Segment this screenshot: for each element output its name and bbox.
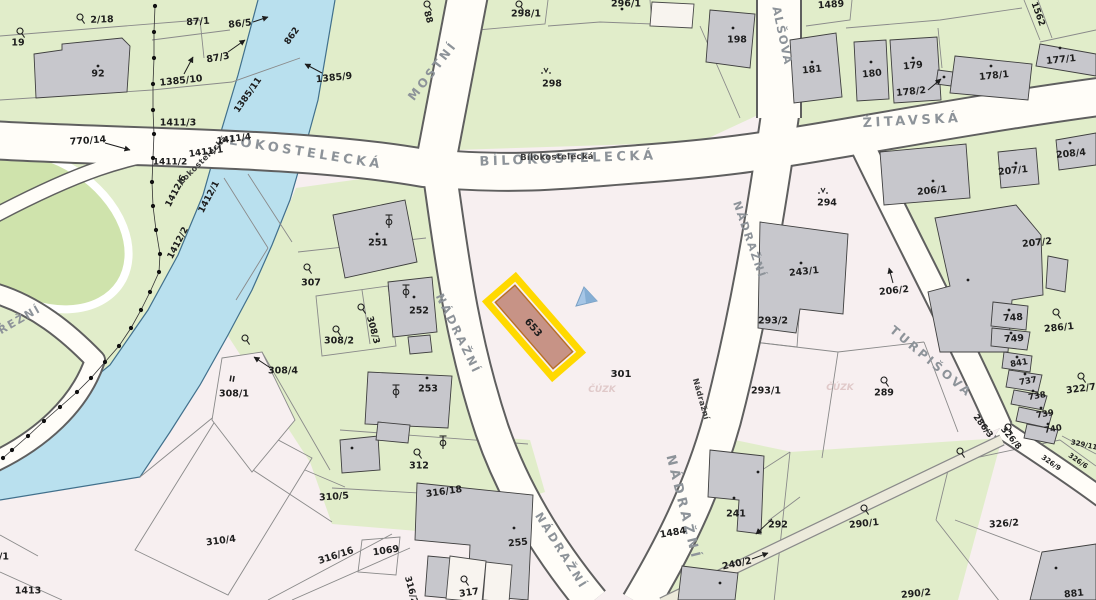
parcel-label-326-2[interactable]: 326/2 bbox=[989, 517, 1020, 530]
building-dot bbox=[1015, 162, 1018, 165]
parcel-label-92[interactable]: 92 bbox=[91, 69, 104, 80]
parcel-label-198[interactable]: 198 bbox=[727, 35, 747, 46]
watermark: ČÚZK bbox=[588, 383, 616, 395]
boundary-dot bbox=[58, 405, 62, 409]
parcel-label-19[interactable]: 19 bbox=[11, 38, 24, 49]
parcel-label-308-1[interactable]: 308/1 bbox=[219, 389, 249, 400]
parcel-label-241[interactable]: 241 bbox=[726, 509, 746, 520]
boundary-dot bbox=[151, 108, 155, 112]
building-dot bbox=[719, 582, 722, 585]
map-canvas[interactable]: 653 ČÚZKČÚZK LOKOSTELECKÁLokosteleckáBÍL… bbox=[0, 0, 1096, 600]
building-dot bbox=[1069, 142, 1072, 145]
building-dot bbox=[1059, 47, 1062, 50]
building-dot bbox=[990, 65, 993, 68]
boundary-dot bbox=[154, 228, 158, 232]
cadastral-map[interactable]: 653 ČÚZKČÚZK LOKOSTELECKÁLokosteleckáBÍL… bbox=[0, 0, 1096, 600]
parcel-label-252[interactable]: 252 bbox=[409, 306, 429, 317]
parcel-label-749[interactable]: 749 bbox=[1004, 333, 1025, 345]
boundary-dot bbox=[148, 290, 152, 294]
building-dot bbox=[733, 497, 736, 500]
boundary-dot bbox=[75, 390, 79, 394]
parcel-label-179[interactable]: 179 bbox=[903, 59, 924, 72]
parcel-label-1489[interactable]: 1489 bbox=[817, 0, 844, 11]
parcel-label-293-2[interactable]: 293/2 bbox=[758, 316, 788, 327]
building-dot bbox=[732, 27, 735, 30]
boundary-dot bbox=[42, 419, 46, 423]
street-label-bílokostelecká: Bílokostelecká bbox=[520, 152, 594, 163]
building-dot bbox=[932, 180, 935, 183]
boundary-dot bbox=[157, 270, 161, 274]
parcel-label-296-1[interactable]: 296/1 bbox=[611, 0, 641, 10]
parcel-label-290-2[interactable]: 290/2 bbox=[901, 587, 932, 600]
boundary-dot bbox=[117, 344, 121, 348]
parcel-label-289[interactable]: 289 bbox=[874, 388, 894, 399]
boundary-dot bbox=[129, 326, 133, 330]
parcel-label-308-2[interactable]: 308/2 bbox=[324, 336, 354, 347]
parcel-label-292[interactable]: 292 bbox=[768, 520, 788, 531]
building-dot bbox=[757, 471, 760, 474]
parcel-label-881[interactable]: 881 bbox=[1064, 587, 1085, 600]
parcel-label-251[interactable]: 251 bbox=[368, 238, 388, 249]
parcel-label-180[interactable]: 180 bbox=[862, 67, 883, 80]
parcel-label-310-5[interactable]: 310/5 bbox=[319, 490, 350, 503]
boundary-dot bbox=[103, 360, 107, 364]
building-dot bbox=[811, 61, 814, 64]
building-dot bbox=[943, 76, 946, 79]
boundary-dot bbox=[89, 376, 93, 380]
boundary-dot bbox=[1, 456, 5, 460]
building-dot bbox=[912, 57, 915, 60]
building-dot bbox=[97, 65, 100, 68]
parcel-label-1411-2[interactable]: 1411/2 bbox=[153, 158, 188, 168]
building-dot bbox=[426, 377, 429, 380]
boundary-dot bbox=[26, 434, 30, 438]
boundary-dot bbox=[153, 4, 157, 8]
boundary-dot bbox=[151, 82, 155, 86]
parcel-label-181[interactable]: 181 bbox=[802, 63, 823, 76]
building-dot bbox=[513, 527, 516, 530]
parcel-label-312[interactable]: 312 bbox=[409, 461, 429, 472]
boundary-dot bbox=[151, 204, 155, 208]
parcel-label-253[interactable]: 253 bbox=[418, 384, 438, 395]
parcel-label-309-1[interactable]: 309/1 bbox=[0, 552, 9, 563]
parcel-label-255[interactable]: 255 bbox=[508, 536, 529, 549]
parcel-label-87-1[interactable]: 87/1 bbox=[186, 16, 210, 29]
boundary-dot bbox=[139, 308, 143, 312]
building-dot bbox=[376, 233, 379, 236]
parcel-label-1411-3[interactable]: 1411/3 bbox=[160, 118, 197, 129]
parcel-label-298[interactable]: 298 bbox=[542, 79, 562, 90]
building-dot bbox=[800, 262, 803, 265]
watermark: ČÚZK bbox=[826, 381, 854, 393]
boundary-dot bbox=[152, 56, 156, 60]
building-dot bbox=[870, 61, 873, 64]
parcel-label-1413[interactable]: 1413 bbox=[15, 586, 41, 597]
boundary-dot bbox=[150, 180, 154, 184]
building-dot bbox=[413, 296, 416, 299]
parcel-label-293-1[interactable]: 293/1 bbox=[751, 386, 781, 397]
parcel-label-298-1[interactable]: 298/1 bbox=[511, 9, 541, 20]
boundary-dot bbox=[152, 30, 156, 34]
parcel-label-307[interactable]: 307 bbox=[301, 278, 321, 289]
parcel-label-294[interactable]: 294 bbox=[817, 198, 837, 209]
building-dot bbox=[1008, 309, 1011, 312]
parcel-label-308-4[interactable]: 308/4 bbox=[268, 366, 298, 377]
boundary-dot bbox=[152, 132, 156, 136]
building-dot bbox=[1055, 567, 1058, 570]
parcel-label-2-18[interactable]: 2/18 bbox=[90, 14, 114, 26]
parcel-label-748[interactable]: 748 bbox=[1003, 312, 1024, 324]
building-dot bbox=[351, 447, 354, 450]
boundary-dot bbox=[158, 252, 162, 256]
building-dot bbox=[1024, 373, 1027, 376]
boundary-dot bbox=[10, 448, 14, 452]
building-dot bbox=[967, 279, 970, 282]
parcel-label-301[interactable]: 301 bbox=[611, 369, 632, 380]
